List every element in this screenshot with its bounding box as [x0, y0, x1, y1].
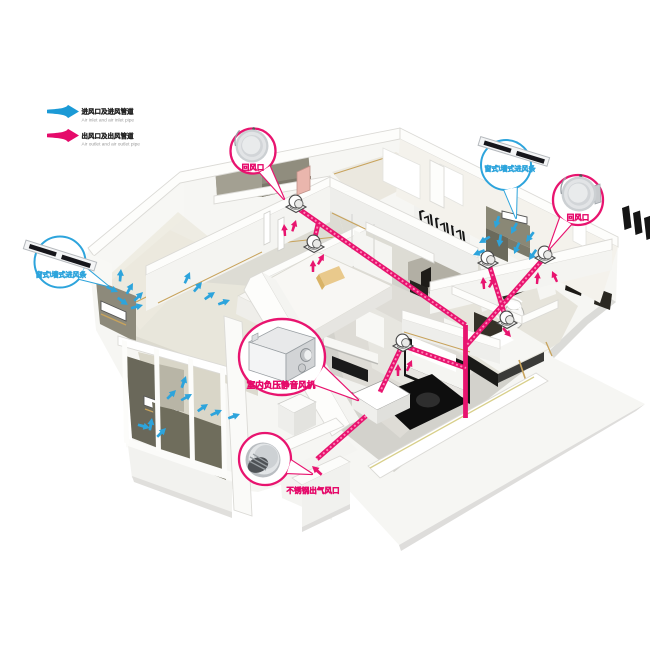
svg-text:Air inlet and air inlet pipe: Air inlet and air inlet pipe	[82, 118, 135, 124]
svg-text:窗式\墙式进风条: 窗式\墙式进风条	[36, 270, 88, 279]
svg-text:回风口: 回风口	[242, 163, 265, 172]
svg-text:出风口及出风管道: 出风口及出风管道	[82, 131, 135, 140]
svg-text:回风口: 回风口	[567, 213, 590, 222]
svg-text:窗式\墙式进风条: 窗式\墙式进风条	[485, 164, 537, 173]
svg-text:不锈钢出气风口: 不锈钢出气风口	[286, 485, 339, 495]
svg-text:Air outlet and air outlet pipe: Air outlet and air outlet pipe	[82, 142, 141, 148]
svg-text:室内负压静音风机: 室内负压静音风机	[247, 379, 316, 390]
svg-text:进风口及进风管道: 进风口及进风管道	[82, 107, 135, 116]
